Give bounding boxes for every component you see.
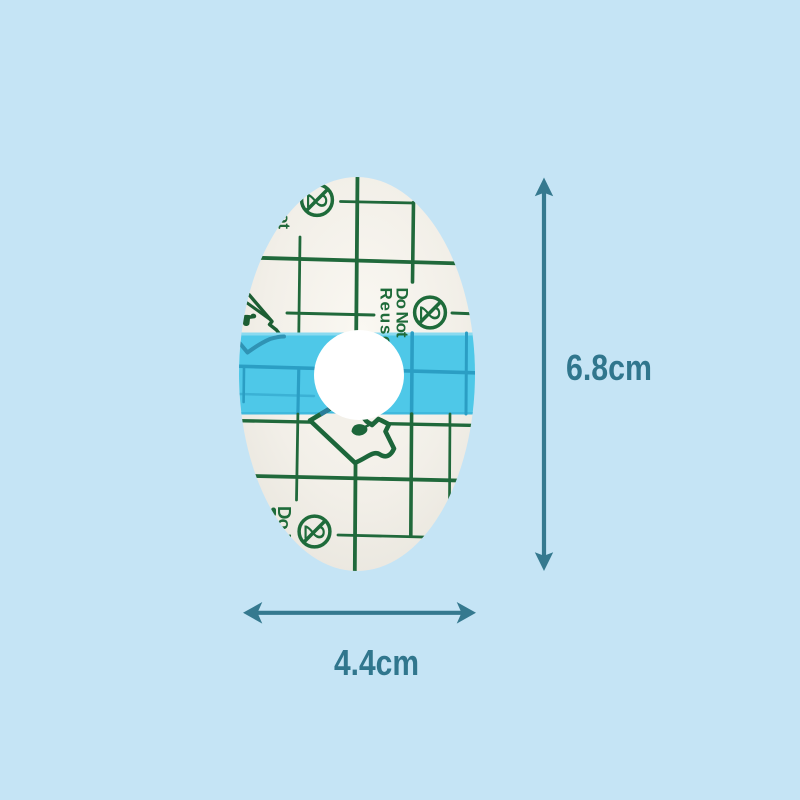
svg-text:6.8cm: 6.8cm (566, 347, 652, 388)
svg-text:4.4cm: 4.4cm (334, 642, 419, 683)
